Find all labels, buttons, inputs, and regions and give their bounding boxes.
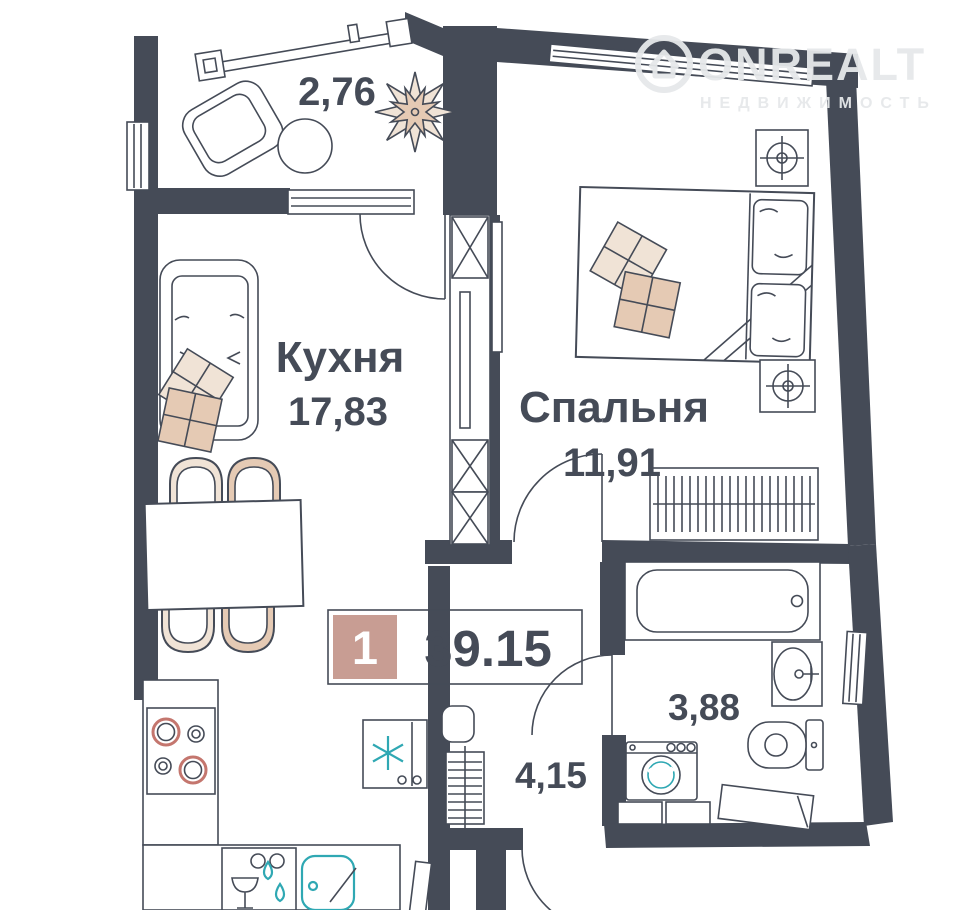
area-badge: 1 39.15 — [328, 610, 582, 684]
pocket-door-track — [460, 292, 470, 428]
chair-seat — [229, 606, 267, 643]
chair-seat — [169, 606, 207, 643]
nightstand-bottom — [760, 360, 815, 412]
toilet — [748, 720, 823, 770]
glazing-mullion — [348, 24, 360, 42]
badge-room-count: 1 — [352, 621, 378, 674]
wall-bath-bottom — [604, 822, 870, 848]
bathroom-area-label: 3,88 — [668, 687, 740, 728]
sofa-pillow-2 — [158, 388, 222, 452]
bathtub — [625, 562, 820, 640]
washing-machine — [626, 742, 697, 800]
dining-table — [145, 500, 304, 610]
wall-top-center — [443, 26, 497, 215]
window-kitchen-balcony — [288, 190, 414, 214]
bedroom-name-label: Спальня — [519, 383, 709, 432]
bathroom-sink — [772, 642, 822, 706]
balcony-table — [278, 119, 332, 173]
floorplan-svg: 2,76 Кухня 17,83 Спальня 11,91 3,88 4,15… — [0, 0, 960, 910]
bed — [576, 187, 814, 363]
stove — [147, 708, 215, 794]
bedroom-area-label: 11,91 — [563, 441, 661, 485]
logo-brand: ONREALT — [698, 39, 926, 90]
chair-seat — [177, 467, 215, 504]
sofa — [158, 260, 258, 452]
wall-entrance-band — [450, 828, 523, 850]
glazing-post-left-core — [203, 58, 217, 73]
toilet-tank — [806, 720, 823, 770]
window-bathroom — [843, 631, 867, 704]
balcony-area-label: 2,76 — [298, 70, 376, 114]
wall-bath-left-upper — [600, 562, 625, 655]
decor-pillow-2 — [614, 272, 680, 338]
plant-icon — [375, 72, 455, 152]
badge-total-area: 39.15 — [424, 620, 552, 677]
hallway-area-label: 4,15 — [515, 755, 587, 796]
window-balcony-side — [127, 122, 149, 190]
bath-cabinet — [666, 802, 710, 824]
wardrobe — [650, 468, 818, 540]
fridge — [363, 720, 427, 788]
kitchen-area-label: 17,83 — [288, 390, 388, 434]
logo-subtitle: НЕДВИЖИМОСТЬ — [700, 95, 937, 112]
chair-seat — [235, 467, 273, 504]
kitchen-name-label: Кухня — [276, 333, 405, 382]
pocket-door-leaf — [492, 222, 502, 352]
wall-balcony-divider — [158, 188, 290, 214]
nightstand-top — [756, 130, 808, 186]
bath-cabinet — [618, 802, 662, 824]
floorplan-image: 2,76 Кухня 17,83 Спальня 11,91 3,88 4,15… — [0, 0, 960, 910]
dishwasher — [222, 848, 296, 910]
wall-entrance-side — [476, 850, 506, 910]
shoe-rack — [446, 746, 484, 830]
glazing-post-right — [386, 18, 412, 46]
toilet-bowl — [748, 722, 806, 768]
wall-bed-bath-divider — [602, 540, 852, 564]
pouf — [442, 706, 474, 742]
